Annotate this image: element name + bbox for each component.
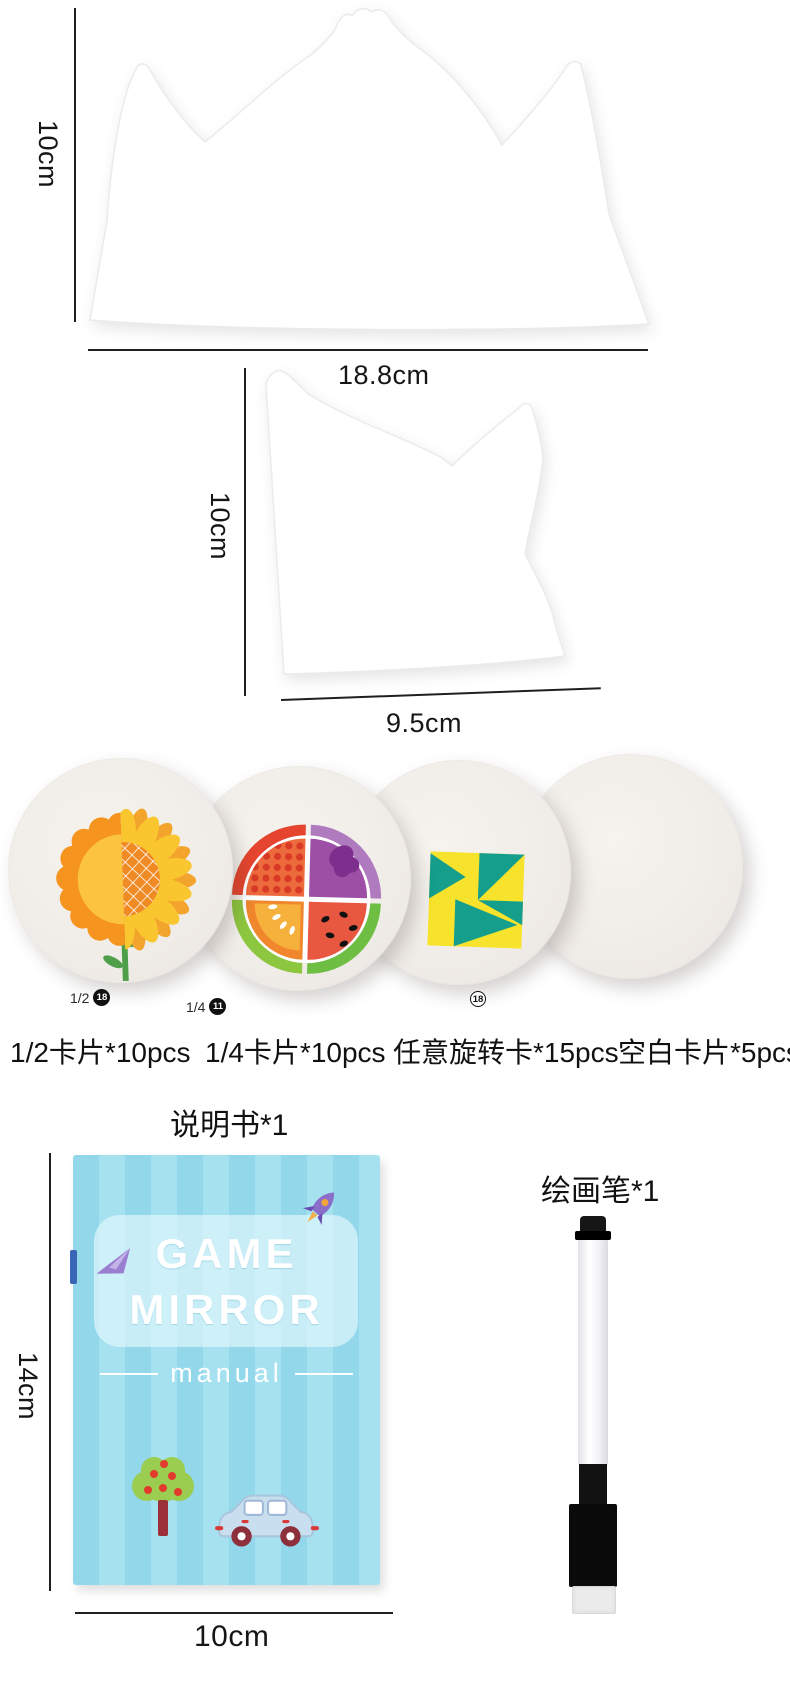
dim-line-board-half-height [244, 368, 246, 696]
subtitle-rule-left [100, 1373, 158, 1375]
geometric-pattern-graphic [427, 851, 524, 948]
manual-label: 说明书*1 [170, 1100, 288, 1144]
badge-number: 11 [209, 998, 226, 1015]
apple-tree-icon [123, 1448, 203, 1550]
dim-label-manual-height: 14cm [12, 1352, 43, 1420]
dim-line-board-half-width [281, 687, 601, 701]
card-quarter-badge: 1/4 11 [186, 998, 226, 1015]
card-half-badge: 1/2 18 [70, 989, 110, 1006]
badge-number: 18 [470, 991, 486, 1007]
pen-cap-ring [575, 1231, 611, 1240]
card-caption-rotate: 任意旋转卡*15pcs [393, 1031, 619, 1071]
card-caption-blank: 空白卡片*5pcs [618, 1031, 790, 1071]
dim-label-manual-width: 10cm [194, 1620, 269, 1654]
dim-label-board-large-height: 10cm [32, 120, 63, 188]
card-rotate-badge: 18 [470, 991, 486, 1007]
dim-line-board-large-width [88, 349, 648, 351]
cover-subtitle-row: manual [73, 1358, 380, 1389]
half-whiteboard-shape [258, 366, 568, 684]
dim-line-board-large-height [74, 8, 76, 322]
large-whiteboard-shape [86, 8, 656, 348]
cover-title-mirror: MIRROR [73, 1289, 380, 1331]
cover-subtitle: manual [170, 1358, 283, 1389]
pen-label: 绘画笔*1 [541, 1166, 659, 1210]
badge-number: 18 [93, 989, 110, 1006]
product-size-diagram: 10cm 18.8cm 10cm 9.5cm [0, 0, 790, 1694]
card-caption-half: 1/2卡片*10pcs [10, 1031, 191, 1071]
badge-prefix: 1/2 [70, 990, 89, 1006]
card-half [4, 754, 237, 987]
pen-body [578, 1240, 608, 1465]
dim-label-board-half-width: 9.5cm [386, 708, 462, 739]
manual-booklet: GAME MIRROR manual [73, 1155, 380, 1585]
pen-collar [579, 1464, 607, 1505]
dim-line-manual-height [49, 1153, 51, 1591]
sun-sunflower-graphic [4, 754, 237, 987]
dim-label-board-half-height: 10cm [204, 492, 235, 560]
subtitle-rule-right [295, 1373, 353, 1375]
pen-cap-body [569, 1504, 617, 1587]
pen-cap-top [580, 1216, 606, 1232]
dim-line-manual-width [75, 1612, 393, 1614]
badge-prefix: 1/4 [186, 999, 205, 1015]
card-caption-quarter: 1/4卡片*10pcs [205, 1031, 386, 1071]
pen-eraser-felt [572, 1586, 616, 1614]
car-icon [211, 1487, 323, 1551]
